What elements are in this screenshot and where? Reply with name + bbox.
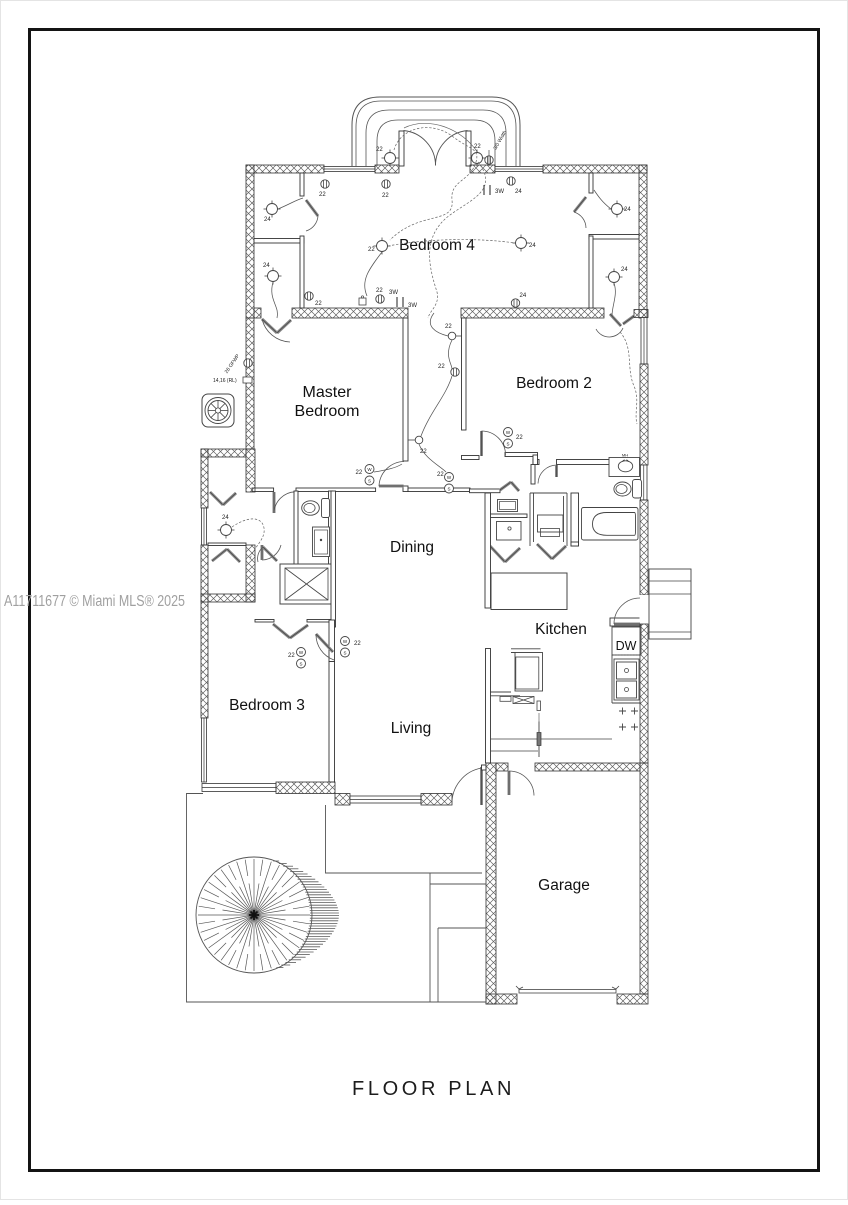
svg-text:24: 24 [624, 207, 631, 213]
svg-text:22: 22 [368, 247, 375, 253]
svg-text:FLOOR PLAN: FLOOR PLAN [352, 1078, 516, 1100]
svg-text:A11711677 © Miami MLS® 2025: A11711677 © Miami MLS® 2025 [4, 593, 185, 610]
svg-text:22: 22 [420, 449, 427, 455]
svg-text:Bedroom 3: Bedroom 3 [229, 697, 305, 714]
svg-text:S: S [447, 487, 450, 492]
svg-text:22: 22 [288, 653, 295, 659]
svg-text:22: 22 [437, 472, 444, 478]
svg-text:22: 22 [382, 193, 389, 199]
svg-text:Living: Living [391, 720, 432, 737]
svg-text:24: 24 [529, 243, 536, 249]
svg-text:Bedroom: Bedroom [295, 403, 360, 420]
svg-text:24: 24 [621, 267, 628, 273]
svg-text:DW: DW [616, 639, 637, 653]
svg-text:24: 24 [264, 217, 271, 223]
svg-text:22: 22 [319, 192, 326, 198]
svg-text:24: 24 [263, 263, 270, 269]
svg-text:Garage: Garage [538, 877, 590, 894]
svg-text:22: 22 [354, 641, 361, 647]
svg-text:22: 22 [445, 324, 452, 330]
svg-text:S: S [343, 651, 346, 656]
svg-text:MH: MH [622, 453, 628, 458]
svg-text:Master: Master [303, 384, 353, 401]
svg-text:24: 24 [222, 515, 229, 521]
svg-text:Dining: Dining [390, 539, 434, 556]
svg-text:22: 22 [438, 364, 445, 370]
svg-text:S: S [299, 662, 302, 667]
svg-text:S: S [368, 479, 371, 484]
svg-text:22: 22 [516, 435, 523, 441]
svg-text:3W: 3W [408, 303, 417, 309]
svg-text:22: 22 [474, 144, 481, 150]
svg-text:S: S [506, 442, 509, 447]
svg-text:22: 22 [376, 147, 383, 153]
svg-text:22: 22 [356, 470, 363, 476]
svg-text:3W: 3W [389, 290, 398, 296]
svg-text:3W: 3W [495, 189, 504, 195]
svg-text:24: 24 [515, 189, 522, 195]
svg-text:22: 22 [376, 288, 383, 294]
svg-text:24: 24 [520, 293, 527, 299]
svg-text:Kitchen: Kitchen [535, 621, 587, 638]
svg-text:14,16 (RL): 14,16 (RL) [213, 378, 237, 384]
svg-text:Bedroom 2: Bedroom 2 [516, 375, 592, 392]
svg-text:22: 22 [315, 301, 322, 307]
